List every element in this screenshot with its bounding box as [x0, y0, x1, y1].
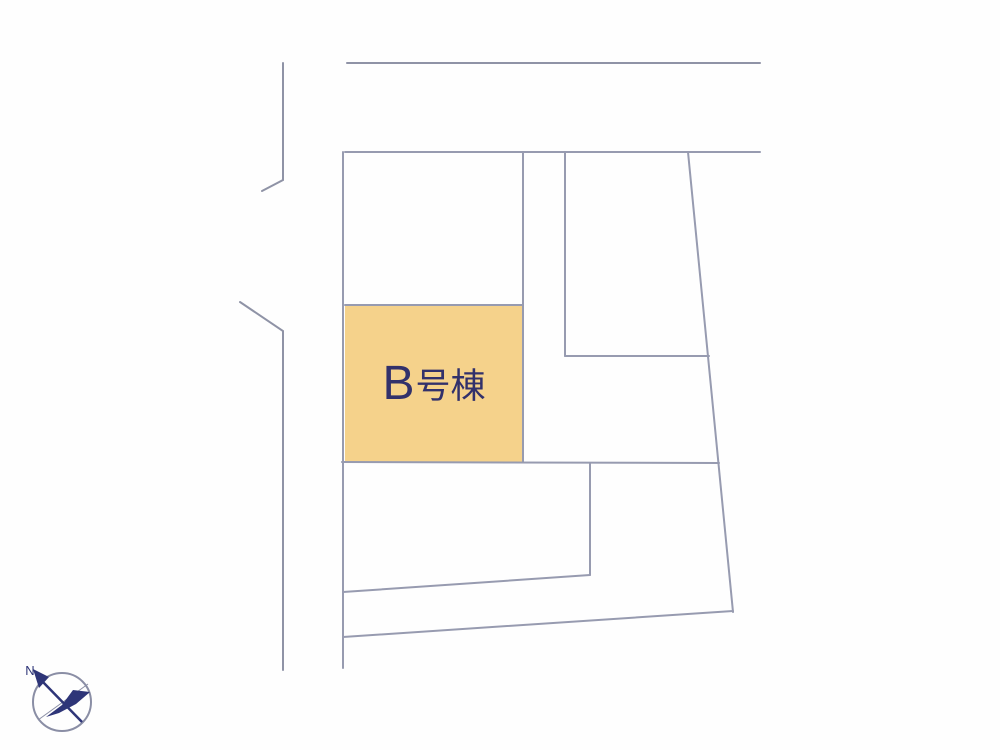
site-plan: N B号棟 — [0, 0, 1000, 750]
lot-b-bottom-line — [342, 462, 719, 463]
compass-north-label: N — [25, 663, 34, 678]
road-left-upper-line — [262, 63, 283, 191]
lot-b-highlight[interactable] — [345, 305, 523, 462]
compass-bird-shape — [46, 690, 90, 717]
boundary-south-slant — [343, 611, 733, 637]
compass-north-icon: N — [25, 663, 91, 731]
lot-line-slant-small — [343, 575, 590, 592]
boundary-east-slant — [688, 152, 733, 612]
road-left-lower-line — [240, 302, 283, 670]
site-plan-drawing: N — [0, 0, 1000, 750]
